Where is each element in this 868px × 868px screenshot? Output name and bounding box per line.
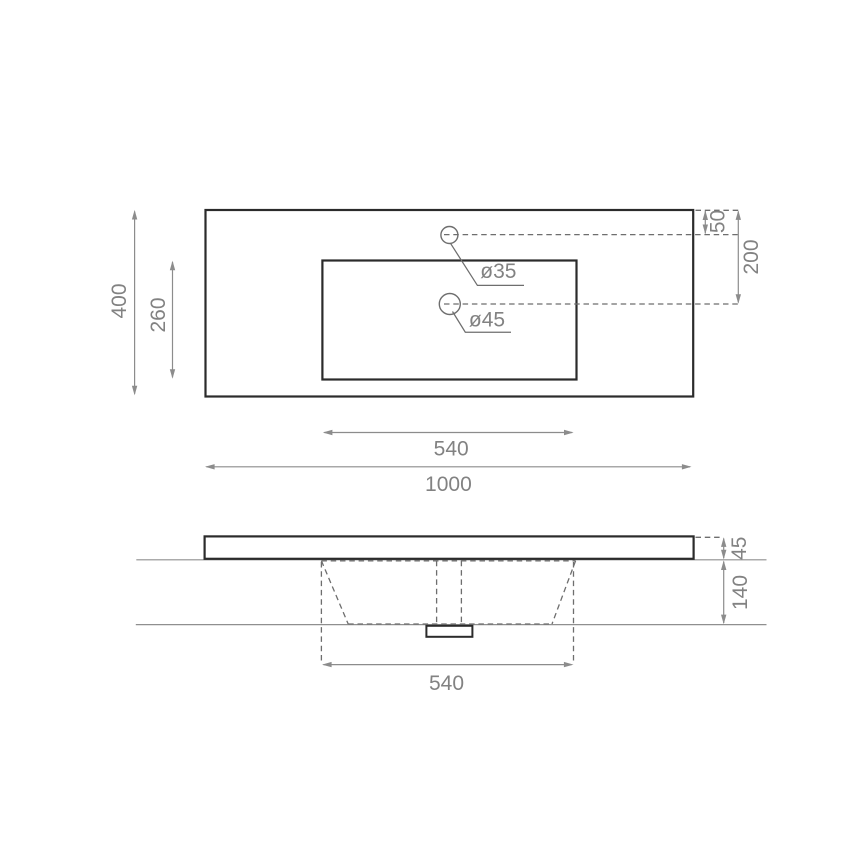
svg-text:ø45: ø45 (469, 309, 505, 332)
svg-text:45: 45 (728, 537, 751, 560)
svg-text:ø35: ø35 (480, 260, 516, 283)
svg-text:540: 540 (429, 672, 464, 695)
svg-text:400: 400 (108, 283, 131, 318)
svg-text:200: 200 (740, 239, 763, 274)
svg-text:50: 50 (706, 210, 729, 233)
svg-text:1000: 1000 (425, 473, 472, 496)
svg-text:140: 140 (729, 575, 752, 610)
svg-text:260: 260 (147, 297, 170, 332)
svg-text:540: 540 (434, 437, 469, 460)
